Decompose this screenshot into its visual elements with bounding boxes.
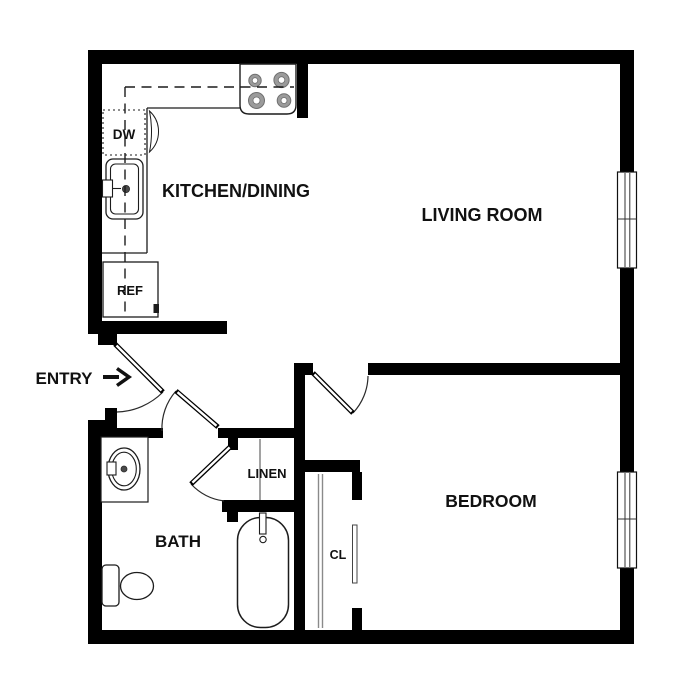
wall-right-3 — [620, 568, 634, 644]
burner-icon — [274, 72, 289, 87]
entry-arrow-icon — [103, 369, 129, 386]
entry-door-icon — [115, 344, 163, 412]
entry-label: ENTRY — [36, 369, 94, 388]
wall-top — [88, 50, 634, 64]
wall-bottom — [88, 630, 634, 644]
room-label-kitchen-dining: KITCHEN/DINING — [162, 181, 310, 201]
wall-closet-east-bottom — [352, 608, 362, 630]
bath-door-icon — [162, 391, 218, 431]
wall-right-2 — [620, 268, 634, 472]
tub-faucet-icon — [260, 513, 267, 534]
room-label-bedroom: BEDROOM — [445, 491, 536, 511]
window-bedroom-icon — [618, 472, 637, 568]
bathroom-sink-icon — [107, 448, 140, 490]
room-label-closet: CL — [330, 548, 347, 562]
wall-hall-linen-north — [218, 428, 298, 438]
room-label-linen: LINEN — [248, 466, 287, 481]
appliance-label-refrigerator: REF — [117, 283, 143, 298]
wall-linen-south-stub — [227, 512, 238, 522]
wall-right-1 — [620, 50, 634, 172]
wall-left-upper — [88, 50, 102, 334]
wall-entry-stub-top — [98, 321, 117, 345]
room-label-bath: BATH — [155, 532, 201, 551]
kitchen-faucet-icon — [122, 185, 129, 192]
tub-drain-icon — [260, 536, 266, 542]
wall-closet-north — [303, 460, 360, 472]
wall-stove-stub — [297, 64, 308, 118]
bathtub-icon — [238, 513, 289, 628]
appliance-label-dishwasher: DW — [113, 127, 136, 142]
wall-linen-south — [222, 500, 298, 512]
wall-bedroom-north — [368, 363, 620, 375]
burner-icon — [249, 74, 261, 86]
wall-closet-east-top — [352, 472, 362, 500]
linen-door-icon — [191, 446, 231, 501]
floor-plan: KITCHEN/DINING LIVING ROOM BEDROOM BATH … — [0, 0, 697, 697]
window-living-room-icon — [618, 172, 637, 268]
closet-door-panel-icon — [353, 525, 358, 583]
bedroom-door-icon — [313, 373, 368, 413]
burner-icon — [249, 93, 265, 109]
stove-icon — [240, 64, 296, 114]
dishwasher-door-arc — [150, 111, 159, 152]
wall-bedroom-door-stub — [297, 363, 313, 375]
wall-left-lower — [88, 420, 102, 644]
toilet-icon — [102, 565, 154, 606]
walls — [88, 50, 634, 644]
kitchen-sink-icon — [103, 159, 144, 219]
room-label-living-room: LIVING ROOM — [422, 205, 543, 225]
burner-icon — [277, 94, 291, 108]
floor-plan-page: KITCHEN/DINING LIVING ROOM BEDROOM BATH … — [0, 0, 697, 697]
bathroom-faucet-icon — [121, 466, 127, 472]
refrigerator-handle — [154, 304, 160, 313]
wall-center-vertical — [294, 363, 305, 630]
